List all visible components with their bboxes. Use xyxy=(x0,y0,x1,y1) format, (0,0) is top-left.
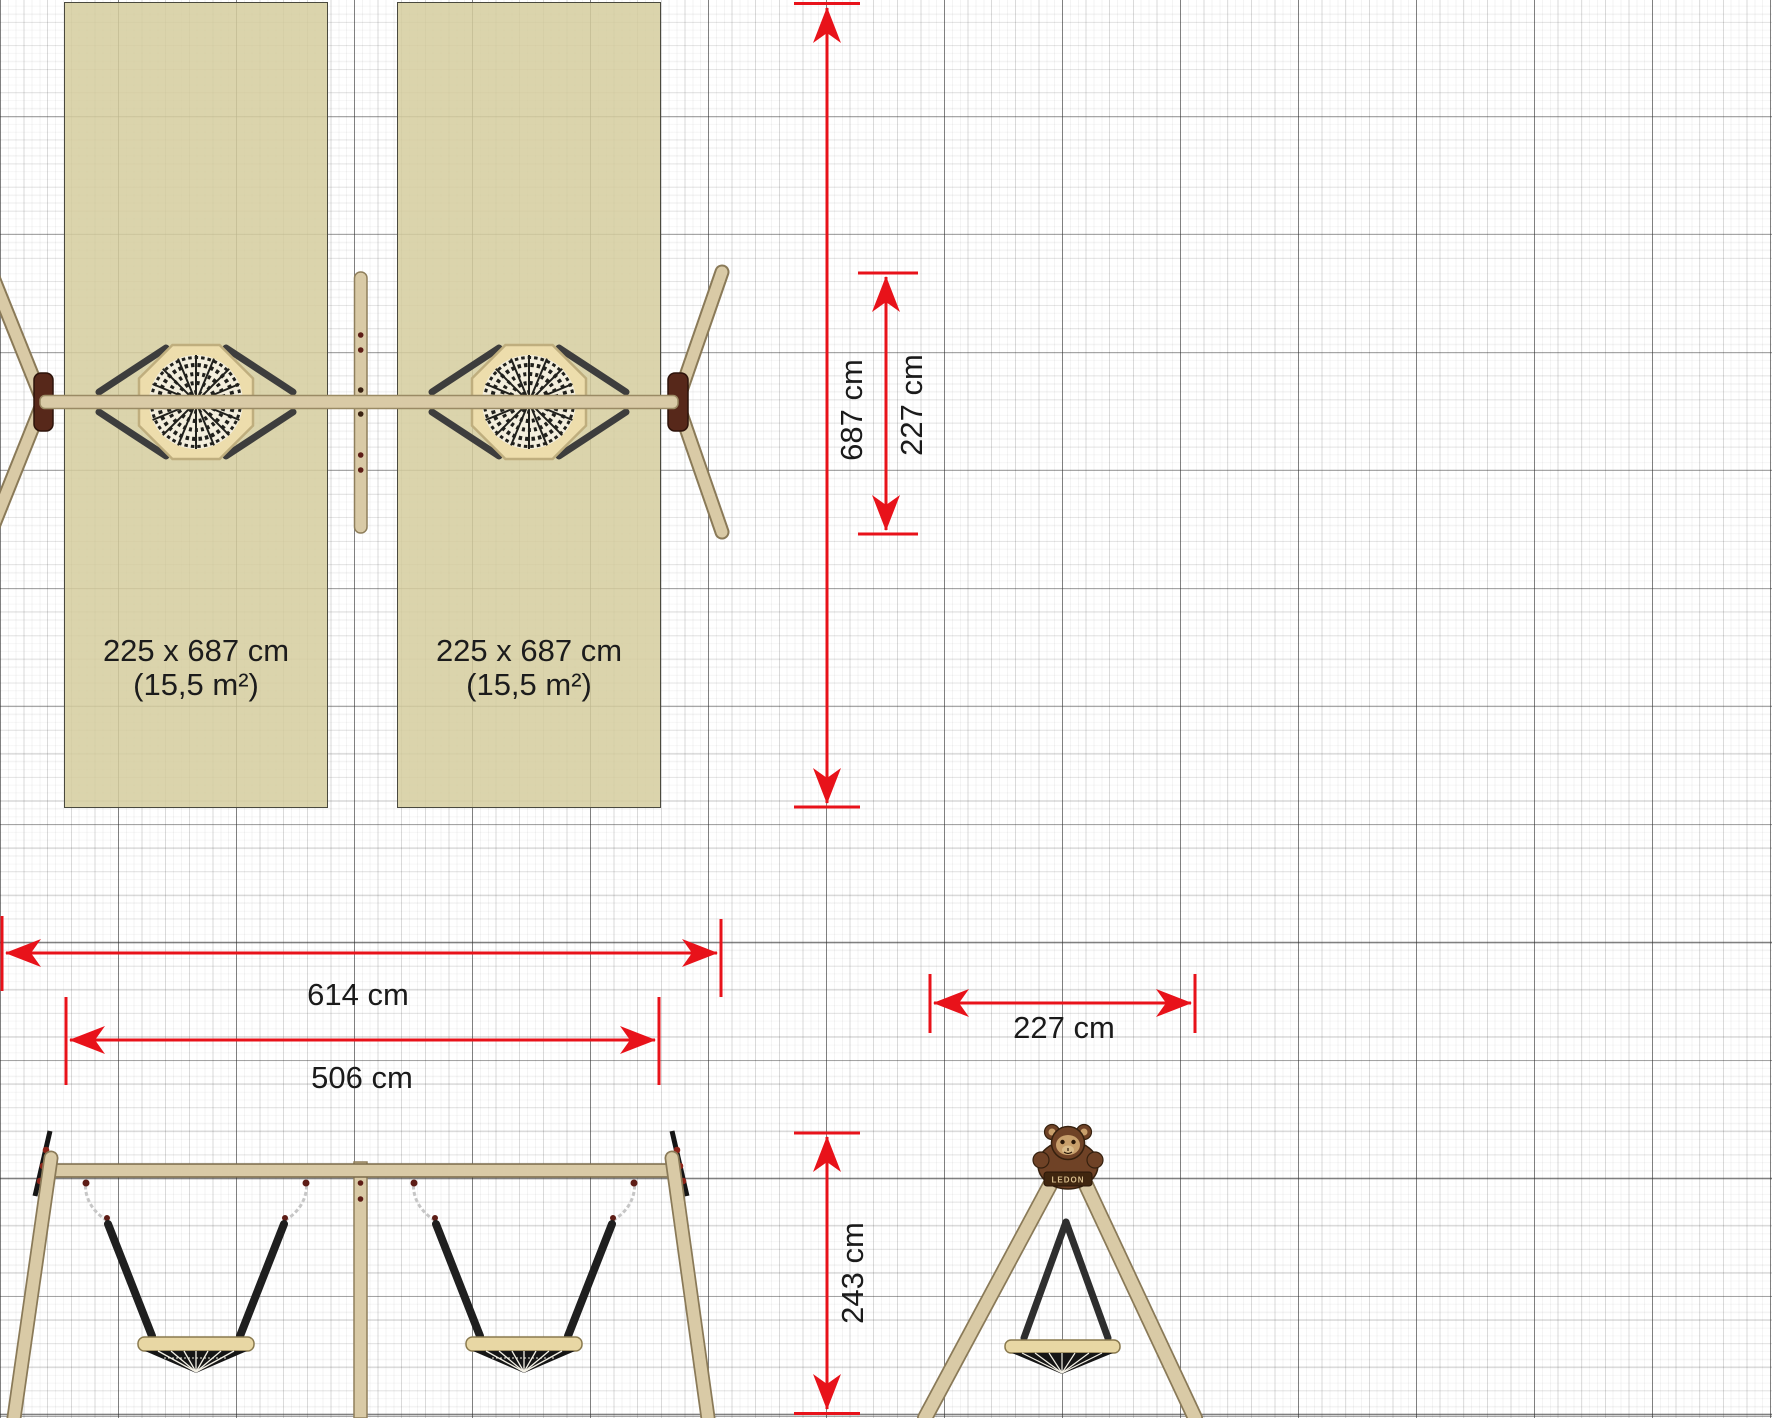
dim-frame-height: 243 cm xyxy=(835,1222,870,1324)
front-view-swing-set xyxy=(14,1131,708,1418)
side-legs xyxy=(925,1185,1195,1418)
brand-logo-text: LEDON xyxy=(1052,1176,1085,1185)
nest-swing-front-2 xyxy=(411,1179,638,1373)
brand-bear-plate: LEDON xyxy=(1033,1125,1103,1190)
side-basket xyxy=(1005,1340,1120,1353)
side-view-frame: LEDON xyxy=(925,1125,1195,1418)
dim-total-width: 614 cm xyxy=(307,977,409,1012)
top-view-swing-set xyxy=(0,270,722,534)
plan-canvas: 225 x 687 cm (15,5 m²) 225 x 687 cm (15,… xyxy=(0,0,1772,1418)
dimension-lines xyxy=(2,4,1195,1414)
front-leg-left xyxy=(14,1131,51,1418)
dim-frame-depth: 227 cm xyxy=(894,354,929,456)
nest-swing-front-1 xyxy=(83,1179,310,1373)
dim-zone-length: 687 cm xyxy=(834,359,869,461)
front-beam xyxy=(55,1164,677,1177)
dim-frame-width: 227 cm xyxy=(1013,1010,1115,1045)
plan-drawing: LEDON xyxy=(0,0,1772,1418)
front-leg-right xyxy=(672,1131,708,1418)
dim-zone-total-width: 506 cm xyxy=(311,1060,413,1095)
top-view-beam xyxy=(40,396,678,409)
side-ropes xyxy=(1024,1222,1108,1338)
